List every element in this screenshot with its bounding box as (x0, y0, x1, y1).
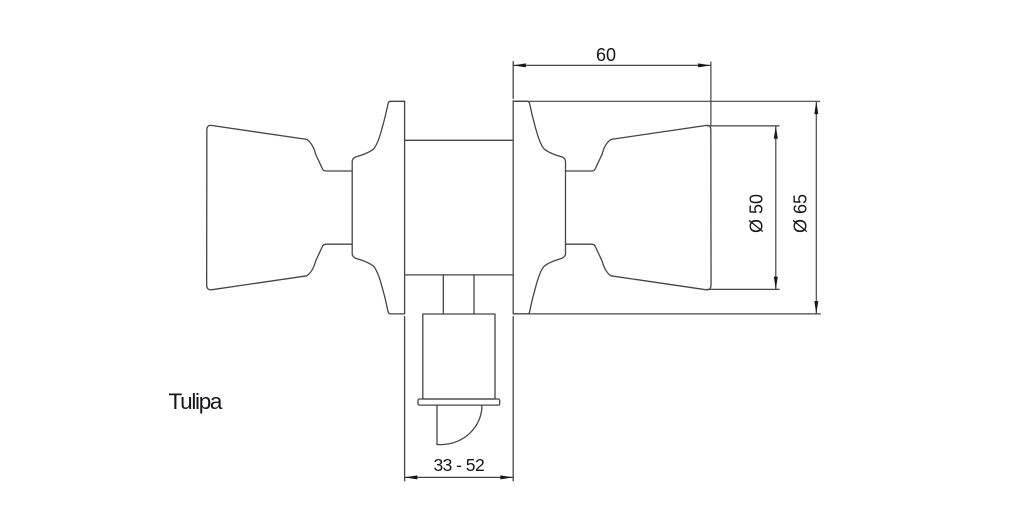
svg-text:Ø 65: Ø 65 (791, 194, 811, 233)
svg-text:Ø 50: Ø 50 (747, 194, 767, 233)
svg-text:60: 60 (596, 45, 616, 65)
svg-text:Tulipa: Tulipa (169, 389, 223, 414)
svg-text:33 - 52: 33 - 52 (434, 455, 485, 475)
